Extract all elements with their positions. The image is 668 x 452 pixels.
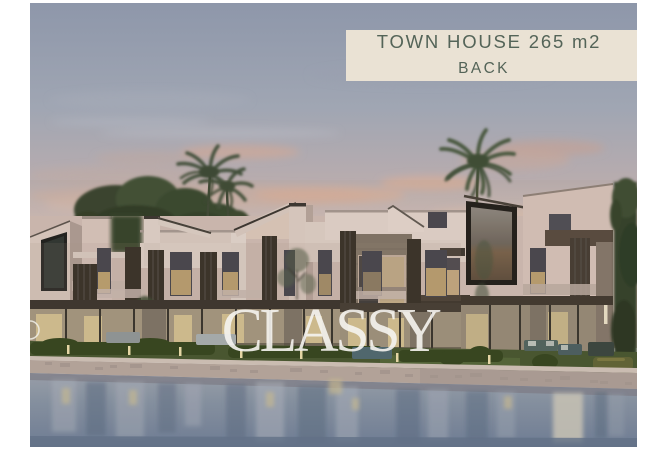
svg-text:TOWN HOUSE 265 m2: TOWN HOUSE 265 m2: [377, 31, 602, 52]
svg-text:BACK: BACK: [458, 60, 510, 77]
svg-text:CLASSY: CLASSY: [222, 297, 441, 365]
